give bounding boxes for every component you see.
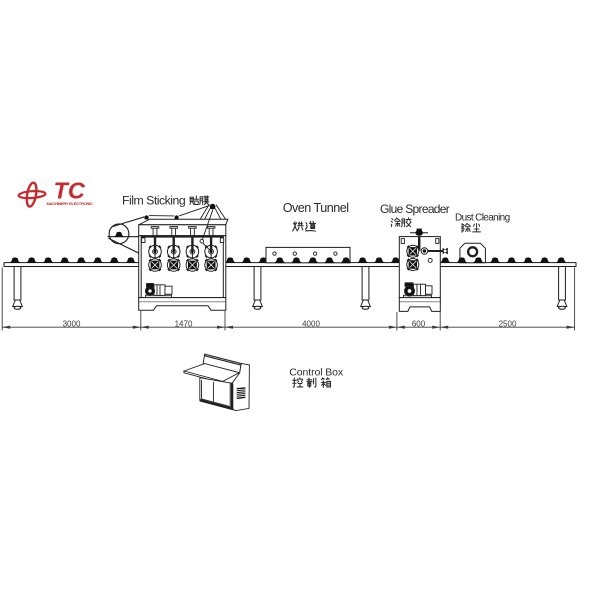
svg-text:2500: 2500: [499, 319, 517, 328]
svg-text:Oven Tunnel: Oven Tunnel: [283, 201, 349, 215]
svg-text:3000: 3000: [63, 319, 81, 328]
svg-text:TC: TC: [54, 178, 86, 204]
svg-text:MACHINERY ELECTRONIC: MACHINERY ELECTRONIC: [47, 201, 93, 206]
svg-text:1470: 1470: [175, 319, 193, 328]
svg-text:Glue Spreader: Glue Spreader: [380, 202, 450, 216]
svg-text:600: 600: [412, 319, 426, 328]
svg-text:Dust Cleaning: Dust Cleaning: [455, 213, 510, 224]
svg-text:Control Box: Control Box: [289, 366, 344, 378]
svg-text:4000: 4000: [302, 319, 320, 328]
svg-text:Film Sticking: Film Sticking: [122, 193, 186, 207]
